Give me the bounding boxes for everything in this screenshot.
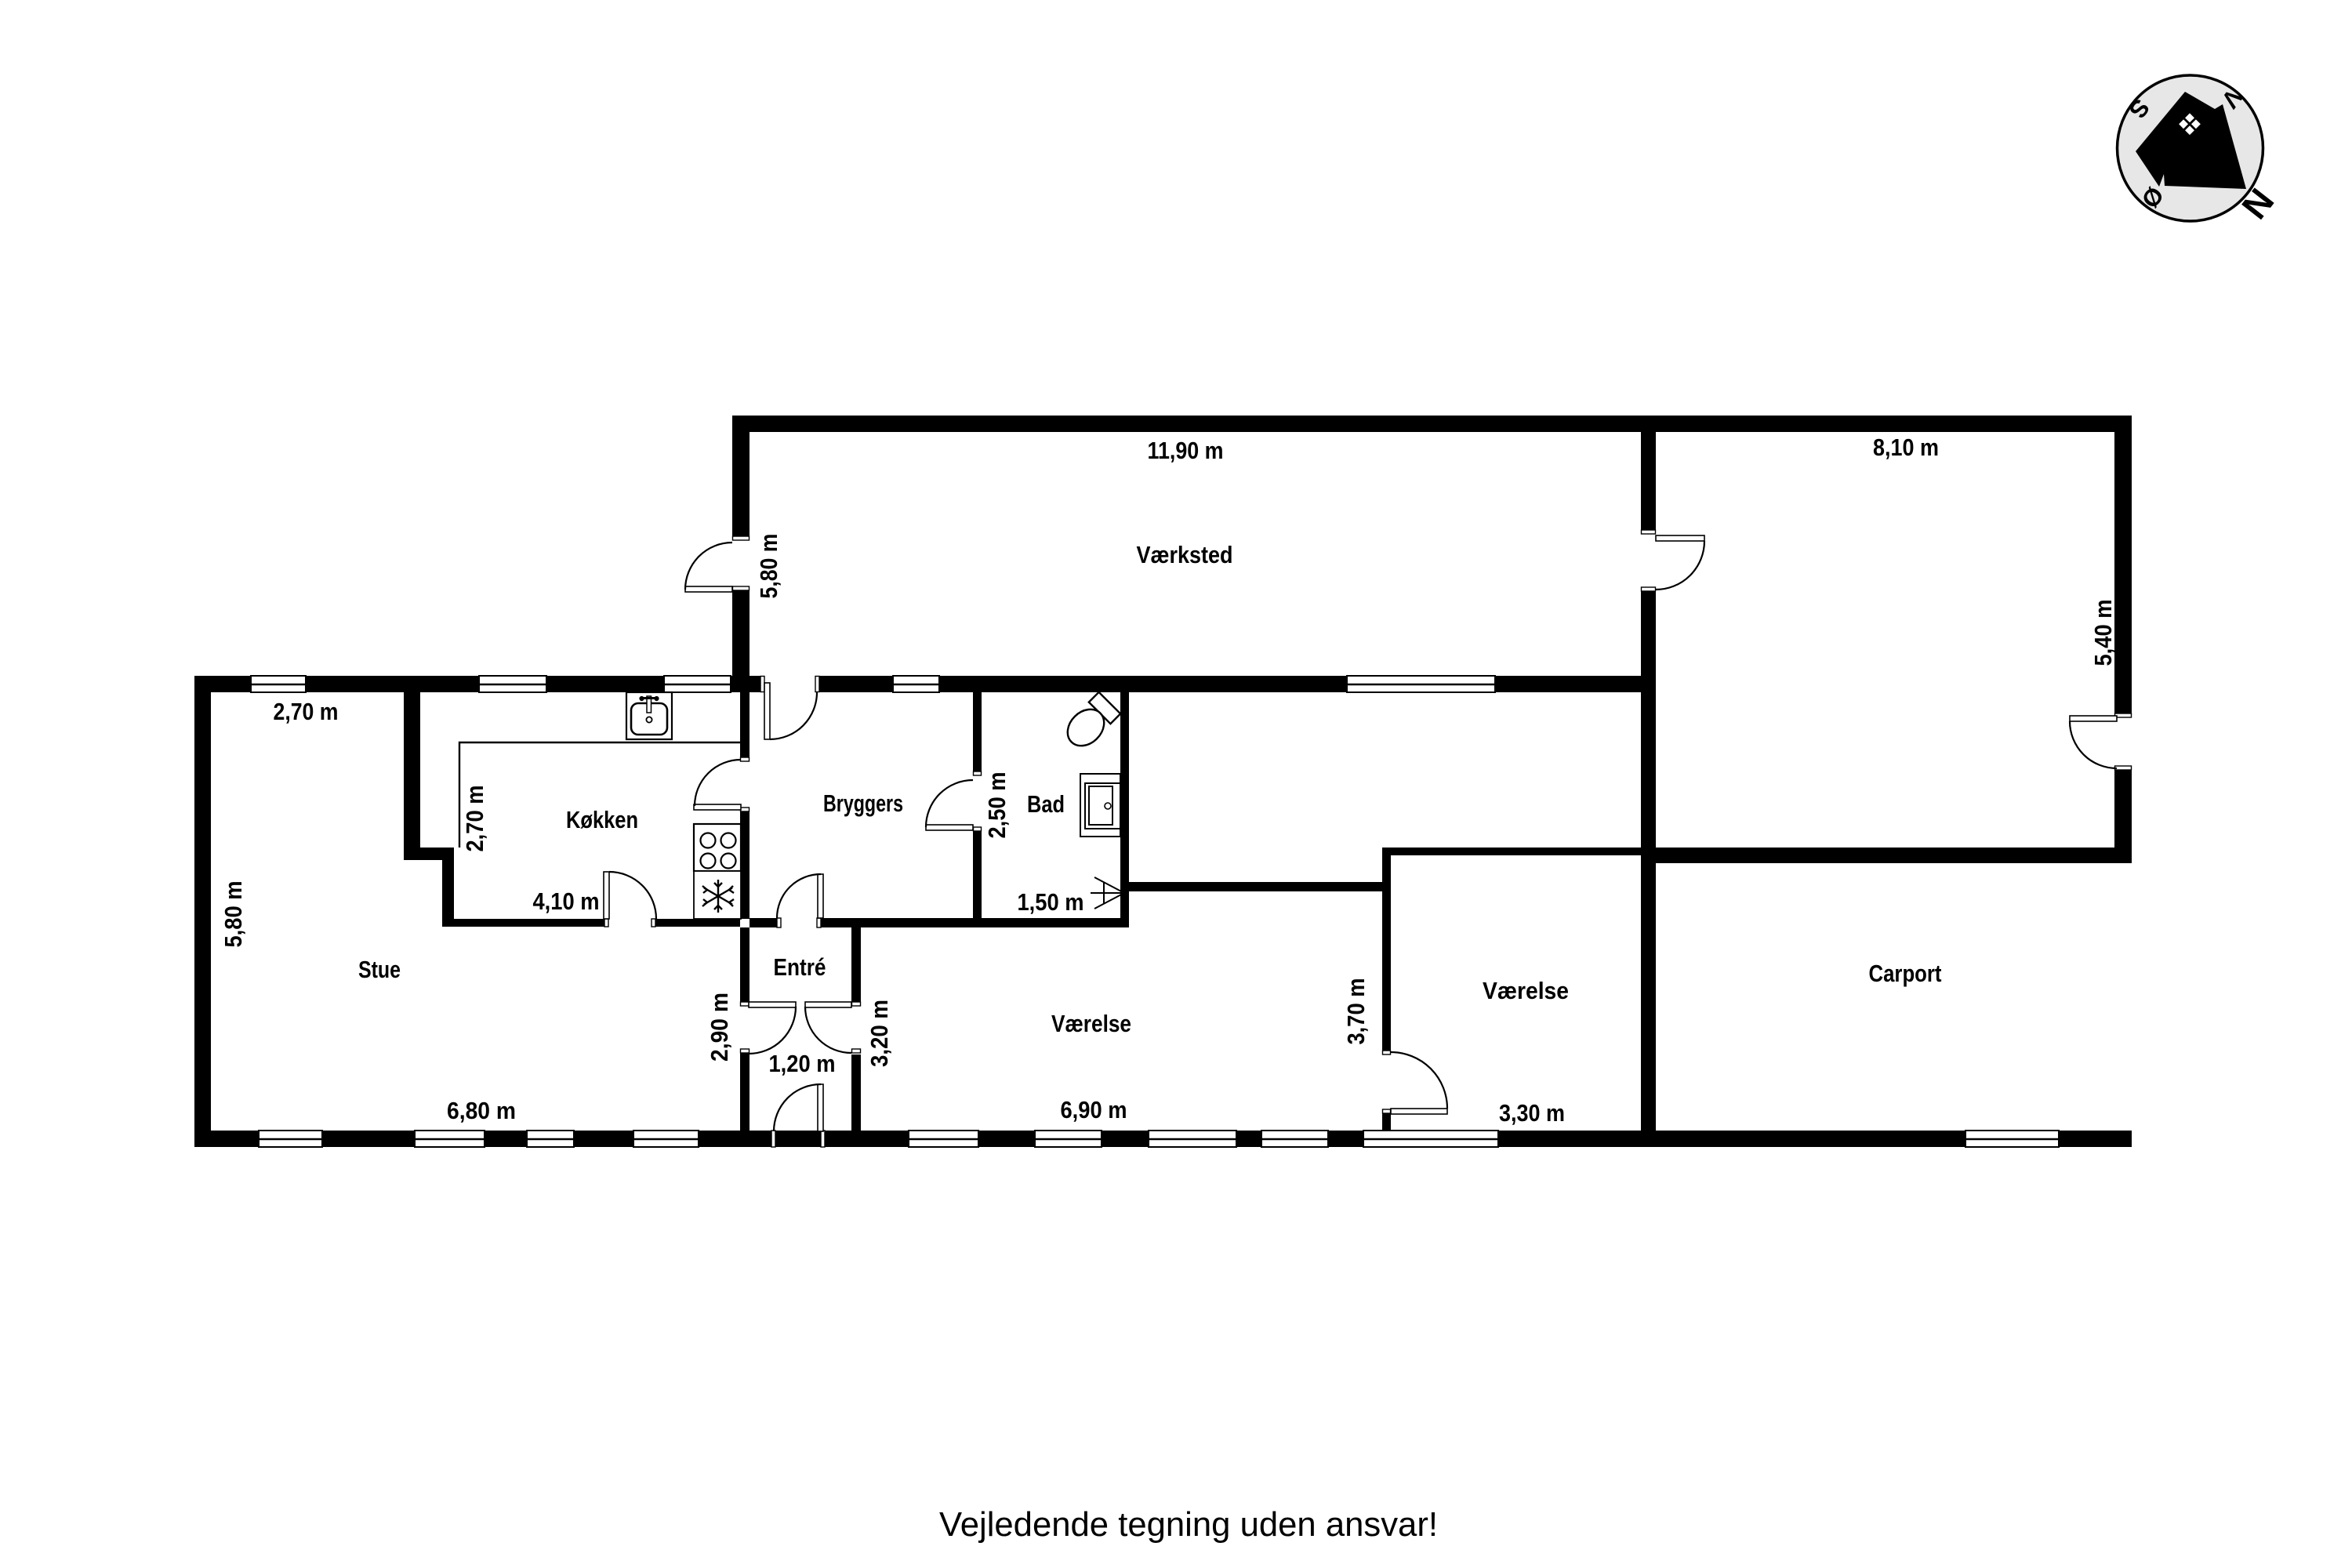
svg-text:Værelse: Værelse [1483, 977, 1569, 1004]
svg-text:4,10 m: 4,10 m [533, 887, 600, 915]
svg-text:Værksted: Værksted [1137, 541, 1233, 568]
svg-text:3,30 m: 3,30 m [1499, 1099, 1565, 1127]
svg-text:5,80 m: 5,80 m [755, 534, 782, 599]
svg-text:Bryggers: Bryggers [823, 789, 903, 817]
svg-text:8,10 m: 8,10 m [1873, 434, 1939, 461]
svg-text:2,90 m: 2,90 m [706, 993, 733, 1062]
svg-text:1,20 m: 1,20 m [769, 1050, 836, 1077]
svg-text:1,50 m: 1,50 m [1018, 888, 1084, 916]
svg-text:5,80 m: 5,80 m [220, 881, 247, 948]
svg-text:Værelse: Værelse [1051, 1010, 1131, 1037]
svg-text:2,70 m: 2,70 m [461, 786, 488, 852]
svg-text:Carport: Carport [1869, 960, 1942, 987]
svg-text:5,40 m: 5,40 m [2089, 600, 2117, 666]
svg-text:2,70 m: 2,70 m [274, 698, 339, 725]
svg-text:Entré: Entré [774, 953, 826, 981]
svg-text:Stue: Stue [358, 956, 401, 983]
svg-text:6,80 m: 6,80 m [447, 1097, 516, 1124]
svg-text:11,90 m: 11,90 m [1148, 437, 1224, 464]
svg-text:3,70 m: 3,70 m [1342, 978, 1370, 1045]
svg-text:Køkken: Køkken [566, 806, 638, 833]
svg-text:6,90 m: 6,90 m [1061, 1096, 1127, 1123]
svg-text:2,50 m: 2,50 m [983, 772, 1011, 839]
svg-text:Bad: Bad [1027, 790, 1065, 818]
svg-text:3,20 m: 3,20 m [866, 1000, 893, 1067]
svg-text:Vejledende tegning uden ansvar: Vejledende tegning uden ansvar! [939, 1505, 1438, 1544]
